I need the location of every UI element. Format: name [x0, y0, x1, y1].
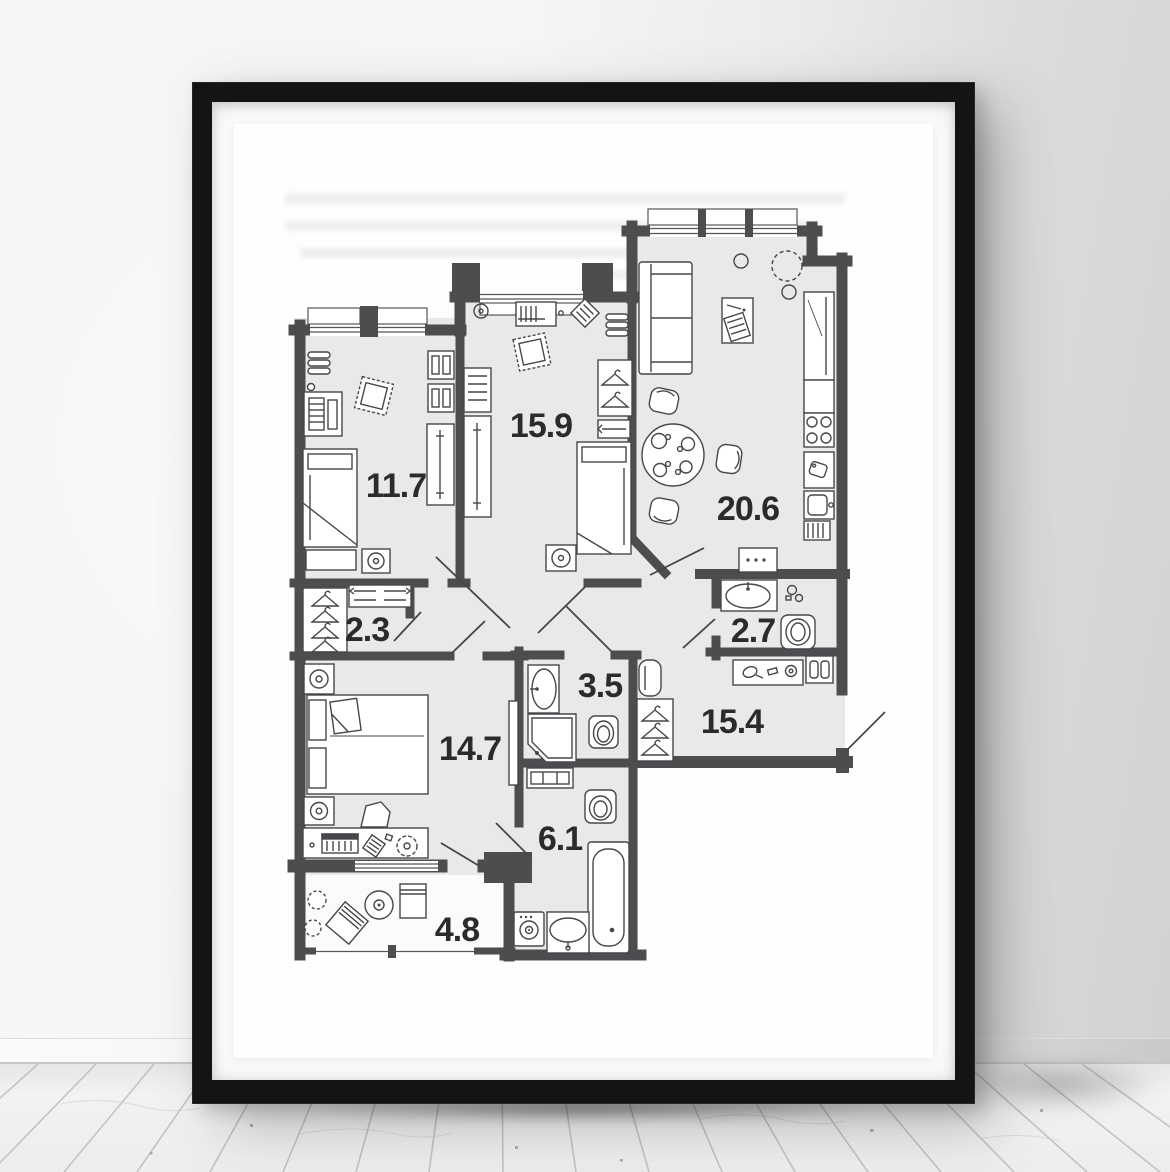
frame-mat [212, 102, 955, 1080]
cast-shadow [955, 1060, 1170, 1130]
poster-paper [234, 124, 933, 1058]
poster-frame [192, 82, 975, 1104]
